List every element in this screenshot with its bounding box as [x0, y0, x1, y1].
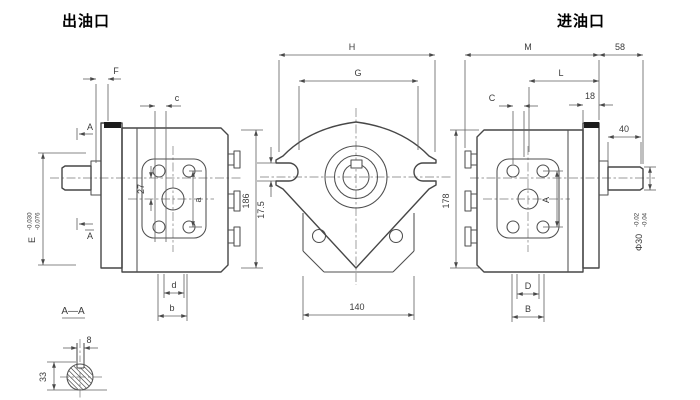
dim-label-c: c [175, 93, 180, 103]
dim-label-b-upper: B [525, 304, 531, 314]
bracket-hole [313, 230, 326, 243]
hatching [53, 347, 110, 400]
dim-label-e: E [27, 237, 37, 243]
dim-label-d: d [171, 280, 176, 290]
dimension-F [83, 79, 121, 163]
dim-label-17-5: 17.5 [256, 201, 266, 219]
rear-bracket [303, 213, 414, 272]
dimension-17-5 [257, 147, 276, 197]
dimension-M [465, 55, 599, 148]
dim-label-b: b [169, 303, 174, 313]
pump-body [477, 130, 583, 272]
dim-label-27: 27 [136, 184, 146, 194]
dim-label-m: M [524, 42, 532, 52]
dim-label-40: 40 [619, 124, 629, 134]
section-arrow-bottom: A [77, 218, 94, 241]
section-title: A—A [61, 306, 85, 317]
dim-label-18: 18 [585, 91, 595, 101]
engineering-drawing-page: 出油口 进油口 F c [0, 0, 700, 400]
dim-label-phi30-tol-lower: -0.04 [642, 212, 649, 227]
section-label-a-top: A [87, 122, 93, 132]
inlet-title: 进油口 [557, 12, 605, 30]
bracket-hole [390, 230, 403, 243]
gear-pump-drawing: 出油口 进油口 F c [0, 0, 700, 400]
dim-label-178: 178 [441, 193, 451, 208]
mounting-flange-plate [101, 123, 122, 268]
dim-label-c-upper: C [489, 93, 496, 103]
dim-label-e-tol-upper: -0.030 [27, 212, 34, 230]
outlet-title: 出油口 [62, 12, 110, 30]
dimension-40 [608, 137, 641, 165]
dim-label-8: 8 [86, 335, 91, 345]
left-side-view: F c E -0.030 -0.076 A A [27, 66, 264, 321]
drive-shaft [608, 167, 643, 190]
flange-cap [584, 122, 599, 128]
dimension-G [299, 81, 418, 150]
bolt-hole [507, 221, 519, 233]
section-label-a-bottom: A [87, 231, 93, 241]
right-side-view: 178 M 58 L C 18 [441, 42, 656, 322]
dim-label-phi30-group: Φ30 -0.02 -0.04 [634, 212, 649, 251]
bolt-hole [507, 165, 519, 177]
dim-label-l: L [558, 68, 563, 78]
dim-label-d-upper: D [525, 281, 532, 291]
flange-cap [104, 122, 121, 128]
dim-label-e-group: E -0.030 -0.076 [27, 212, 42, 243]
dim-label-58: 58 [615, 42, 625, 52]
dim-label-186: 186 [241, 193, 251, 208]
keyway-notch [351, 160, 362, 168]
dimension-140 [303, 276, 414, 320]
dim-label-g: G [354, 68, 361, 78]
front-view: H G 17.5 140 [256, 42, 452, 320]
dimension-phi30 [644, 167, 656, 190]
pump-body [122, 128, 228, 272]
dim-label-33: 33 [38, 372, 48, 382]
section-a-a: A—A 8 33 [38, 306, 110, 400]
port-fittings [465, 151, 477, 246]
section-arrow-top: A [77, 122, 93, 140]
dim-label-phi30: Φ30 [634, 234, 644, 251]
dim-label-140: 140 [349, 302, 364, 312]
dim-label-a-upper: A [541, 197, 551, 203]
dim-label-a: a [193, 197, 203, 202]
port-fittings [228, 151, 240, 246]
dim-label-f: F [113, 66, 119, 76]
mounting-flange-plate [583, 123, 599, 268]
dim-label-phi30-tol-upper: -0.02 [634, 212, 641, 227]
dim-label-h: H [349, 42, 356, 52]
dim-label-e-tol-lower: -0.076 [35, 212, 42, 230]
dimension-18 [569, 105, 613, 122]
dimension-58 [599, 55, 643, 164]
dimension-C [499, 106, 538, 164]
